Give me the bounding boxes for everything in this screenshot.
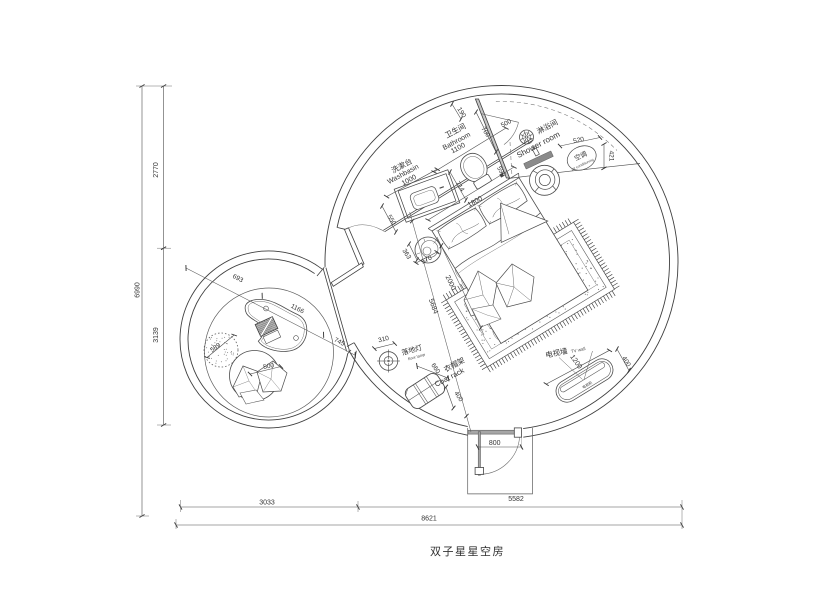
svg-text:421: 421 <box>608 151 615 162</box>
svg-text:3139: 3139 <box>153 327 160 343</box>
svg-text:6990: 6990 <box>135 282 142 298</box>
svg-text:5582: 5582 <box>508 496 524 503</box>
svg-text:800: 800 <box>489 440 501 447</box>
svg-text:8621: 8621 <box>421 516 437 523</box>
svg-text:2770: 2770 <box>153 162 160 178</box>
svg-text:双子星星空房: 双子星星空房 <box>430 544 505 558</box>
svg-text:3033: 3033 <box>259 500 275 507</box>
